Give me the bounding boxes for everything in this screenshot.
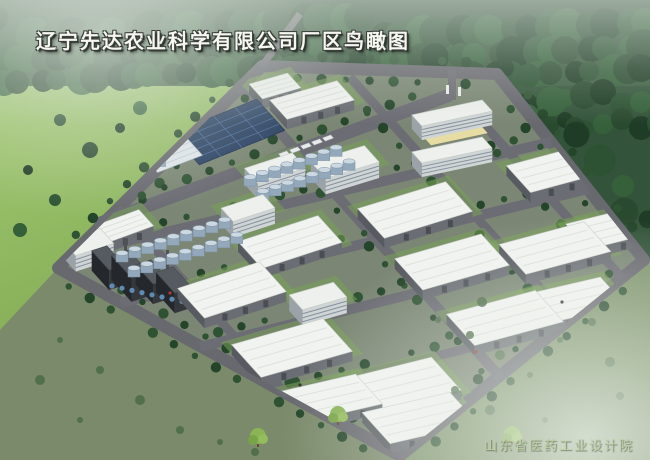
aerial-rendering-scene — [0, 0, 650, 460]
design-institute-watermark: 山东省医药工业设计院 — [484, 435, 634, 454]
page-title: 辽宁先达农业科学有限公司厂区鸟瞰图 — [36, 25, 410, 54]
rendering-canvas: 辽宁先达农业科学有限公司厂区鸟瞰图 山东省医药工业设计院 — [0, 0, 650, 460]
